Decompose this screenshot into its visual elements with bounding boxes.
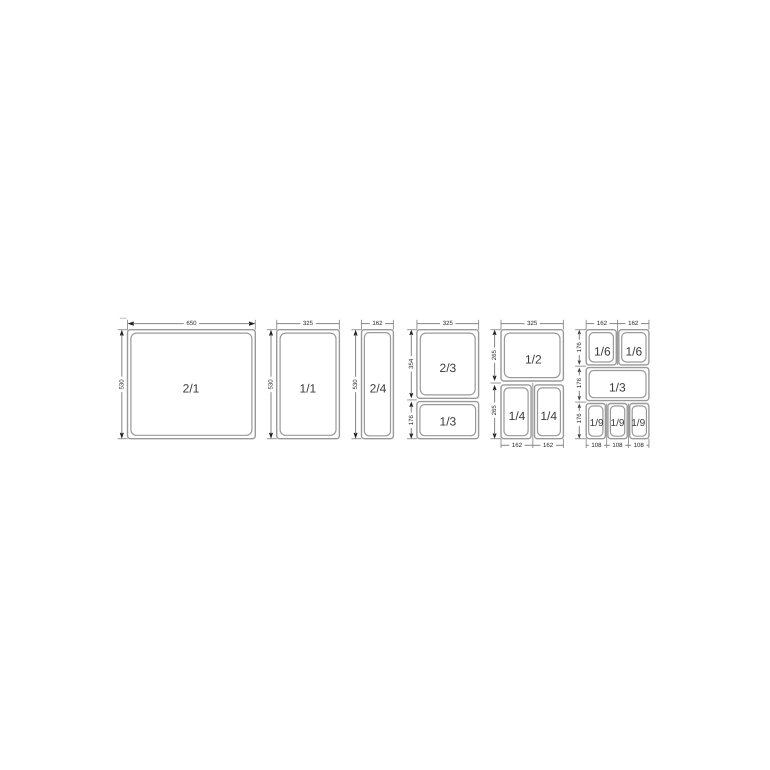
svg-text:1/3: 1/3 (440, 415, 457, 429)
svg-text:1/9: 1/9 (590, 418, 604, 429)
svg-text:162: 162 (543, 442, 554, 449)
svg-text:1/9: 1/9 (631, 418, 645, 429)
svg-text:1/6: 1/6 (594, 345, 611, 359)
svg-text:265: 265 (491, 350, 498, 361)
svg-text:176: 176 (408, 415, 415, 426)
svg-text:265: 265 (491, 405, 498, 416)
svg-text:2/4: 2/4 (370, 381, 387, 395)
svg-text:325: 325 (303, 320, 314, 327)
svg-text:162: 162 (372, 320, 383, 327)
svg-text:176: 176 (576, 377, 583, 388)
svg-text:176: 176 (576, 342, 583, 353)
svg-text:530: 530 (352, 379, 359, 390)
svg-text:650: 650 (186, 320, 197, 327)
svg-text:354: 354 (408, 358, 415, 369)
svg-text:1/9: 1/9 (611, 418, 625, 429)
svg-text:162: 162 (512, 442, 523, 449)
svg-text:530: 530 (268, 379, 275, 390)
svg-text:1/3: 1/3 (609, 380, 626, 394)
svg-text:1/4: 1/4 (540, 409, 557, 423)
svg-text:1/4: 1/4 (509, 409, 526, 423)
svg-text:1/2: 1/2 (525, 352, 542, 366)
svg-text:108: 108 (634, 442, 645, 449)
svg-text:1/6: 1/6 (625, 345, 642, 359)
svg-text:162: 162 (628, 320, 639, 327)
svg-text:162: 162 (597, 320, 608, 327)
svg-text:108: 108 (612, 442, 623, 449)
svg-text:325: 325 (527, 320, 538, 327)
svg-text:2/3: 2/3 (440, 361, 457, 375)
svg-text:1/1: 1/1 (300, 381, 317, 395)
svg-text:2/1: 2/1 (183, 381, 200, 395)
svg-text:176: 176 (576, 413, 583, 424)
svg-text:108: 108 (591, 442, 602, 449)
svg-text:530: 530 (118, 379, 125, 390)
svg-text:325: 325 (443, 320, 454, 327)
